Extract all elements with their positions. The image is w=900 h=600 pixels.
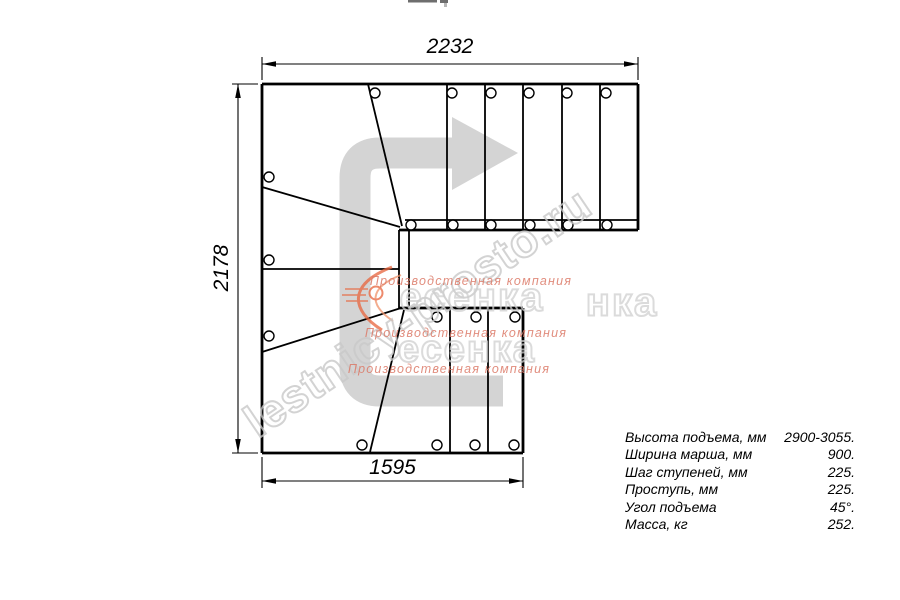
spec-row: Масса, кг 252. (625, 516, 855, 533)
spec-label: Проступь, мм (625, 481, 718, 498)
dimension-top-value: 2232 (262, 35, 638, 59)
spec-label: Ширина марша, мм (625, 446, 752, 463)
spec-label: Шаг ступеней, мм (625, 464, 748, 481)
spec-value: 2900-3055. (784, 429, 855, 446)
spec-value: 225. (828, 481, 855, 498)
spec-row: Шаг ступеней, мм 225. (625, 464, 855, 481)
spec-row: Ширина марша, мм 900. (625, 446, 855, 463)
spec-value: 225. (828, 464, 855, 481)
spec-value: 252. (828, 516, 855, 533)
spec-label: Угол подъема (625, 499, 717, 516)
spec-row: Проступь, мм 225. (625, 481, 855, 498)
dimension-bottom-value: 1595 (262, 456, 523, 480)
spec-row: Высота подъема, мм 2900-3055. (625, 429, 855, 446)
spec-value: 45°. (830, 499, 855, 516)
dimension-left-value: 2178 (210, 245, 234, 292)
direction-arrow-icon (355, 117, 518, 391)
spec-row: Угол подъема 45°. (625, 499, 855, 516)
spec-label: Высота подъема, мм (625, 429, 767, 446)
spec-label: Масса, кг (625, 516, 688, 533)
top-edge-artifact (408, 0, 448, 7)
staircase-drawing-canvas: lestnicy-prosto.ru есенка нка есенка Про… (0, 0, 900, 600)
dimension-lines (232, 57, 638, 488)
spec-table: Высота подъема, мм 2900-3055. Ширина мар… (625, 429, 855, 533)
spec-value: 900. (828, 446, 855, 463)
